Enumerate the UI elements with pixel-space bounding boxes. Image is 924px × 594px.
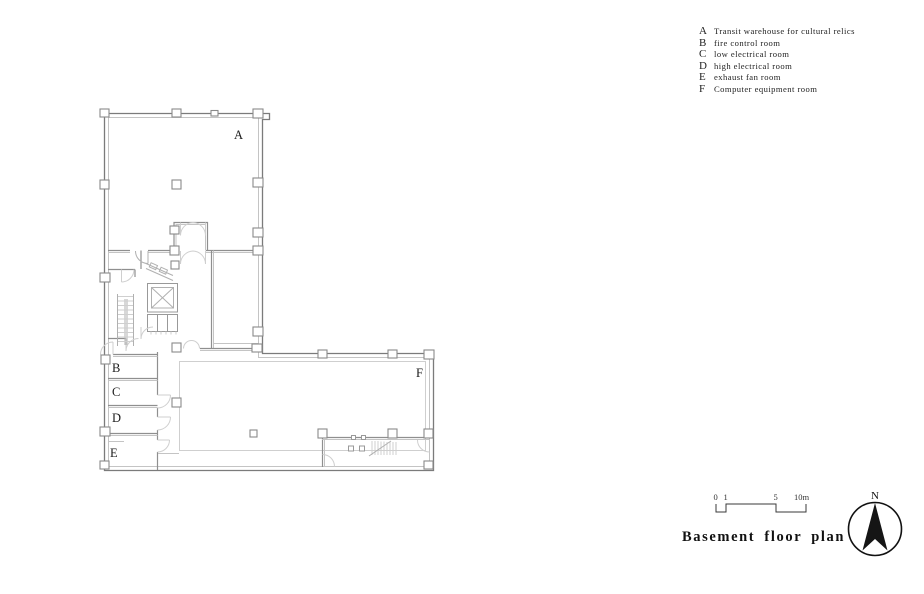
legend-row: F Computer equipment room bbox=[699, 83, 919, 95]
service-stair bbox=[349, 436, 397, 457]
room-label-e: E bbox=[110, 446, 118, 460]
scale-bar-line bbox=[716, 504, 806, 512]
north-needle-icon bbox=[863, 503, 888, 551]
legend-row: B fire control room bbox=[699, 37, 919, 49]
legend-label: Computer equipment room bbox=[714, 84, 817, 94]
scale-label-10m: 10m bbox=[794, 492, 810, 502]
legend-row: C low electrical room bbox=[699, 48, 919, 60]
legend-label: exhaust fan room bbox=[714, 72, 781, 82]
interior-walls bbox=[108, 223, 430, 471]
legend-label: fire control room bbox=[714, 38, 780, 48]
legend-letter: C bbox=[699, 48, 714, 60]
door-arcs bbox=[101, 223, 430, 467]
ramp bbox=[146, 263, 173, 281]
legend-letter: F bbox=[699, 83, 714, 95]
page-title: Basement floor plan bbox=[682, 529, 845, 546]
room-label-f: F bbox=[416, 366, 423, 380]
legend-letter: D bbox=[699, 60, 714, 72]
legend-label: low electrical room bbox=[714, 49, 789, 59]
legend-label: high electrical room bbox=[714, 61, 792, 71]
north-label: N bbox=[871, 490, 879, 502]
legend-letter: A bbox=[699, 25, 714, 37]
legend-row: A Transit warehouse for cultural relics bbox=[699, 25, 919, 37]
scale-bar: 0 1 5 10m bbox=[705, 490, 815, 516]
legend-row: E exhaust fan room bbox=[699, 71, 919, 83]
room-label-c: C bbox=[112, 385, 120, 399]
legend: A Transit warehouse for cultural relics … bbox=[699, 25, 919, 95]
legend-letter: B bbox=[699, 37, 714, 49]
scale-label-0: 0 bbox=[714, 492, 718, 502]
room-label-d: D bbox=[112, 411, 121, 425]
scale-label-1: 1 bbox=[724, 492, 728, 502]
room-label-b: B bbox=[112, 361, 120, 375]
legend-letter: E bbox=[699, 71, 714, 83]
scale-label-5: 5 bbox=[774, 492, 778, 502]
legend-row: D high electrical room bbox=[699, 60, 919, 72]
room-label-a: A bbox=[234, 128, 243, 142]
legend-label: Transit warehouse for cultural relics bbox=[714, 26, 855, 36]
north-arrow: N bbox=[843, 486, 907, 562]
